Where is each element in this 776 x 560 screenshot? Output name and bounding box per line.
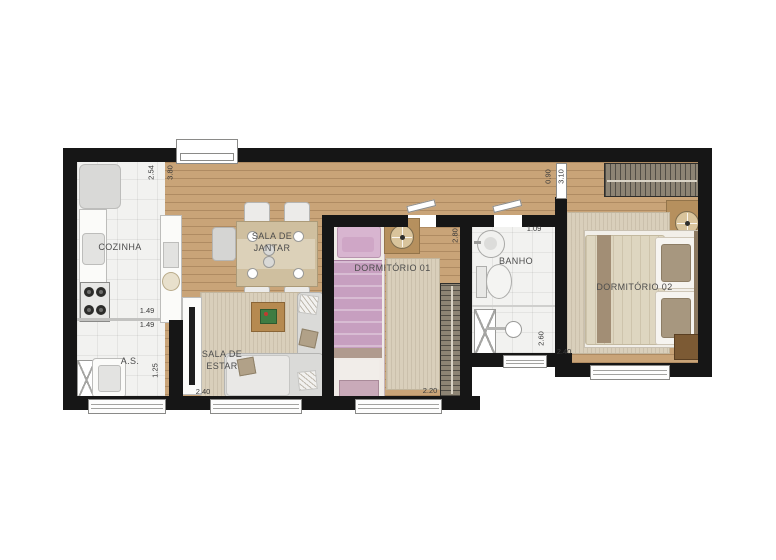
sink-basin: [484, 237, 497, 250]
dimension-label: 2.60: [537, 326, 546, 352]
toilet-bowl: [486, 264, 512, 299]
island-decor: [162, 272, 180, 291]
dorm2-wardrobe: [604, 163, 700, 197]
room-label-jantar: SALA DE JANTAR: [237, 231, 307, 254]
fridge: [79, 164, 121, 209]
room-label-banho: BANHO: [488, 256, 544, 268]
dorm1-window: [355, 399, 442, 414]
as-window: [88, 399, 166, 414]
dimension-label: 1.49: [134, 306, 160, 315]
dorm2-window: [590, 365, 670, 380]
sofa-pillow: [297, 370, 318, 391]
plate-icon: [247, 268, 258, 279]
coffee-table: [251, 302, 285, 332]
sofa-pillow: [298, 328, 318, 348]
wall-right: [698, 148, 712, 377]
tank-basin: [98, 365, 121, 392]
wall-left: [63, 148, 77, 410]
dimension-label: 2.20: [417, 386, 443, 395]
wall-dorm1-banho: [460, 215, 472, 396]
room-label-dorm1: DORMITÓRIO 01: [350, 263, 435, 275]
plate-icon: [293, 268, 304, 279]
shower-head-icon: [505, 321, 522, 338]
bowl-icon: [263, 256, 275, 268]
dimension-label: 2.80: [451, 223, 460, 249]
shower-door: [474, 309, 496, 356]
dimension-label: 2.40: [190, 387, 216, 396]
wall-top-right: [234, 148, 712, 162]
entry-door-leaf: [180, 153, 234, 161]
dorm1-wardrobe: [440, 283, 462, 397]
tv-icon: [189, 307, 195, 385]
kitchen-island: [160, 215, 182, 323]
faucet-icon: [474, 241, 481, 244]
burner-icon: [96, 287, 106, 297]
dimension-label: 1.25: [151, 358, 160, 384]
burner-icon: [84, 305, 94, 315]
wall-corridor-b: [436, 215, 494, 227]
stove: [80, 282, 110, 322]
floor-plan: COZINHA SALA DE JANTAR SALA DE ESTAR A.S…: [0, 0, 776, 560]
sofa-pillow: [298, 294, 319, 315]
banho-window: [503, 355, 547, 368]
pillow-inner: [661, 298, 691, 338]
room-label-as: A.S.: [112, 356, 148, 368]
burner-icon: [96, 305, 106, 315]
room-label-estar: SALA DE ESTAR: [192, 349, 252, 372]
dimension-label: 1.49: [134, 320, 160, 329]
tv-panel: [182, 297, 202, 395]
tray: [260, 309, 277, 324]
dimension-label: 3.80: [166, 160, 175, 186]
single-bed: [333, 221, 385, 400]
bath-sink: [477, 230, 505, 258]
dimension-label: 2.54: [147, 160, 156, 186]
dorm1-rug: [386, 258, 440, 390]
wall-sala-dorm1: [322, 215, 334, 396]
ceiling-fan-icon: [390, 225, 414, 249]
blanket-fold: [334, 348, 382, 358]
room-label-cozinha: COZINHA: [85, 242, 155, 254]
wall-dorm2-left: [555, 197, 567, 367]
sheet: [337, 360, 379, 380]
wall-as-sala: [169, 320, 183, 396]
wall-top-left: [63, 148, 178, 162]
side-chair: [212, 227, 236, 261]
dimension-label: 1.09: [521, 224, 547, 233]
wall-corridor-a: [322, 215, 408, 227]
room-label-dorm2: DORMITÓRIO 02: [592, 282, 677, 294]
burner-icon: [84, 287, 94, 297]
shower-divider: [472, 305, 555, 307]
dimension-label: 3.10: [557, 164, 566, 190]
dimension-label: 0.90: [544, 164, 553, 190]
island-cooktop: [163, 242, 179, 268]
sala-window: [210, 399, 302, 414]
pillow-inner: [342, 237, 374, 252]
pillow-inner: [661, 244, 691, 282]
tray-dot: [264, 312, 268, 316]
dimension-label: 2.40: [551, 347, 577, 356]
